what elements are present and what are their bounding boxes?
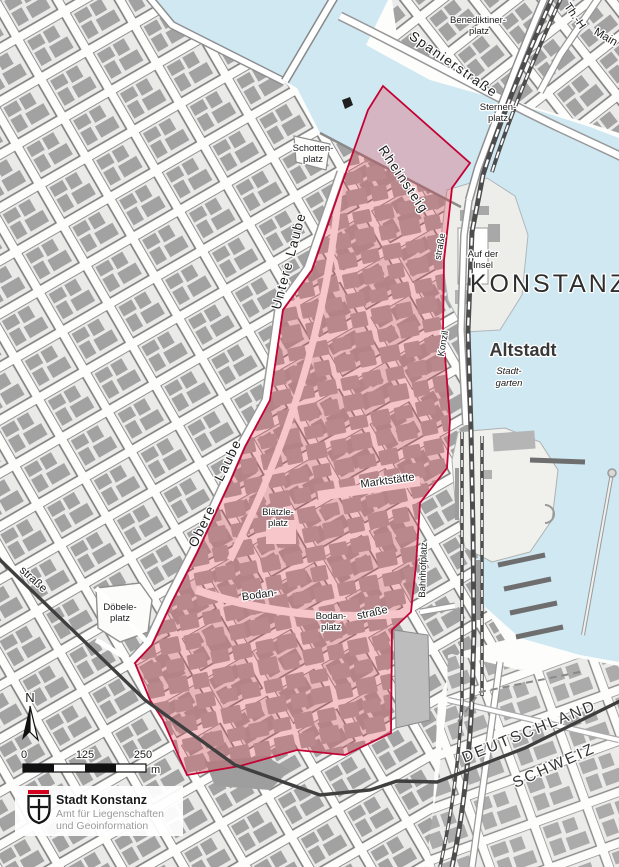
bodanplatz-label-2: platz: [321, 622, 341, 633]
scale-unit: m: [151, 764, 160, 776]
logo-subtitle-2: und Geoinformation: [56, 820, 148, 832]
north-label: N: [25, 690, 34, 705]
sternenplatz-label-1: Sternen-: [480, 102, 516, 113]
benediktinerplatz-label-2: platz: [469, 26, 489, 37]
bahnhofplatz-label: Bahnhofplatz: [417, 542, 430, 598]
stadt-konstanz-crest-icon: [28, 790, 50, 823]
large-building-block: [394, 630, 430, 728]
logo-title: Stadt Konstanz: [56, 793, 147, 807]
benediktinerplatz-label-1: Benediktiner-: [450, 15, 506, 26]
konstanz-city-label: KONSTANZ: [470, 270, 619, 298]
stadtgarten-label-1: Stadt-: [496, 366, 521, 377]
blaetzleplatz-label-2: platz: [268, 518, 288, 529]
konstanz-plan-map: Benediktiner- platz Spanierstraße Th.-H …: [0, 0, 619, 867]
bodanplatz-label-1: Bodan-: [316, 611, 347, 622]
doebeleplatz-label-1: Döbele-: [103, 602, 136, 613]
sternenplatz-label-2: platz: [488, 113, 508, 124]
scale-tick-0: 0: [21, 749, 27, 761]
scale-tick-250: 250: [134, 749, 152, 761]
logo-subtitle-1: Amt für Liegenschaften: [56, 808, 164, 820]
stadtgarten-label-2: garten: [496, 378, 523, 389]
map-canvas: Benediktiner- platz Spanierstraße Th.-H …: [0, 0, 619, 867]
altstadt-label: Altstadt: [490, 340, 557, 360]
logo-panel: Stadt Konstanz Amt für Liegenschaften un…: [15, 786, 183, 836]
schottenplatz-label-2: platz: [303, 154, 323, 165]
scale-tick-125: 125: [76, 749, 94, 761]
blaetzleplatz-label-1: Blätzle-: [262, 507, 294, 518]
doebeleplatz-label-2: platz: [110, 613, 130, 624]
auf-der-insel-label-1: Auf der: [468, 249, 499, 260]
city-blocks-southeast: [425, 653, 619, 867]
schottenplatz-label-1: Schotten-: [293, 143, 334, 154]
